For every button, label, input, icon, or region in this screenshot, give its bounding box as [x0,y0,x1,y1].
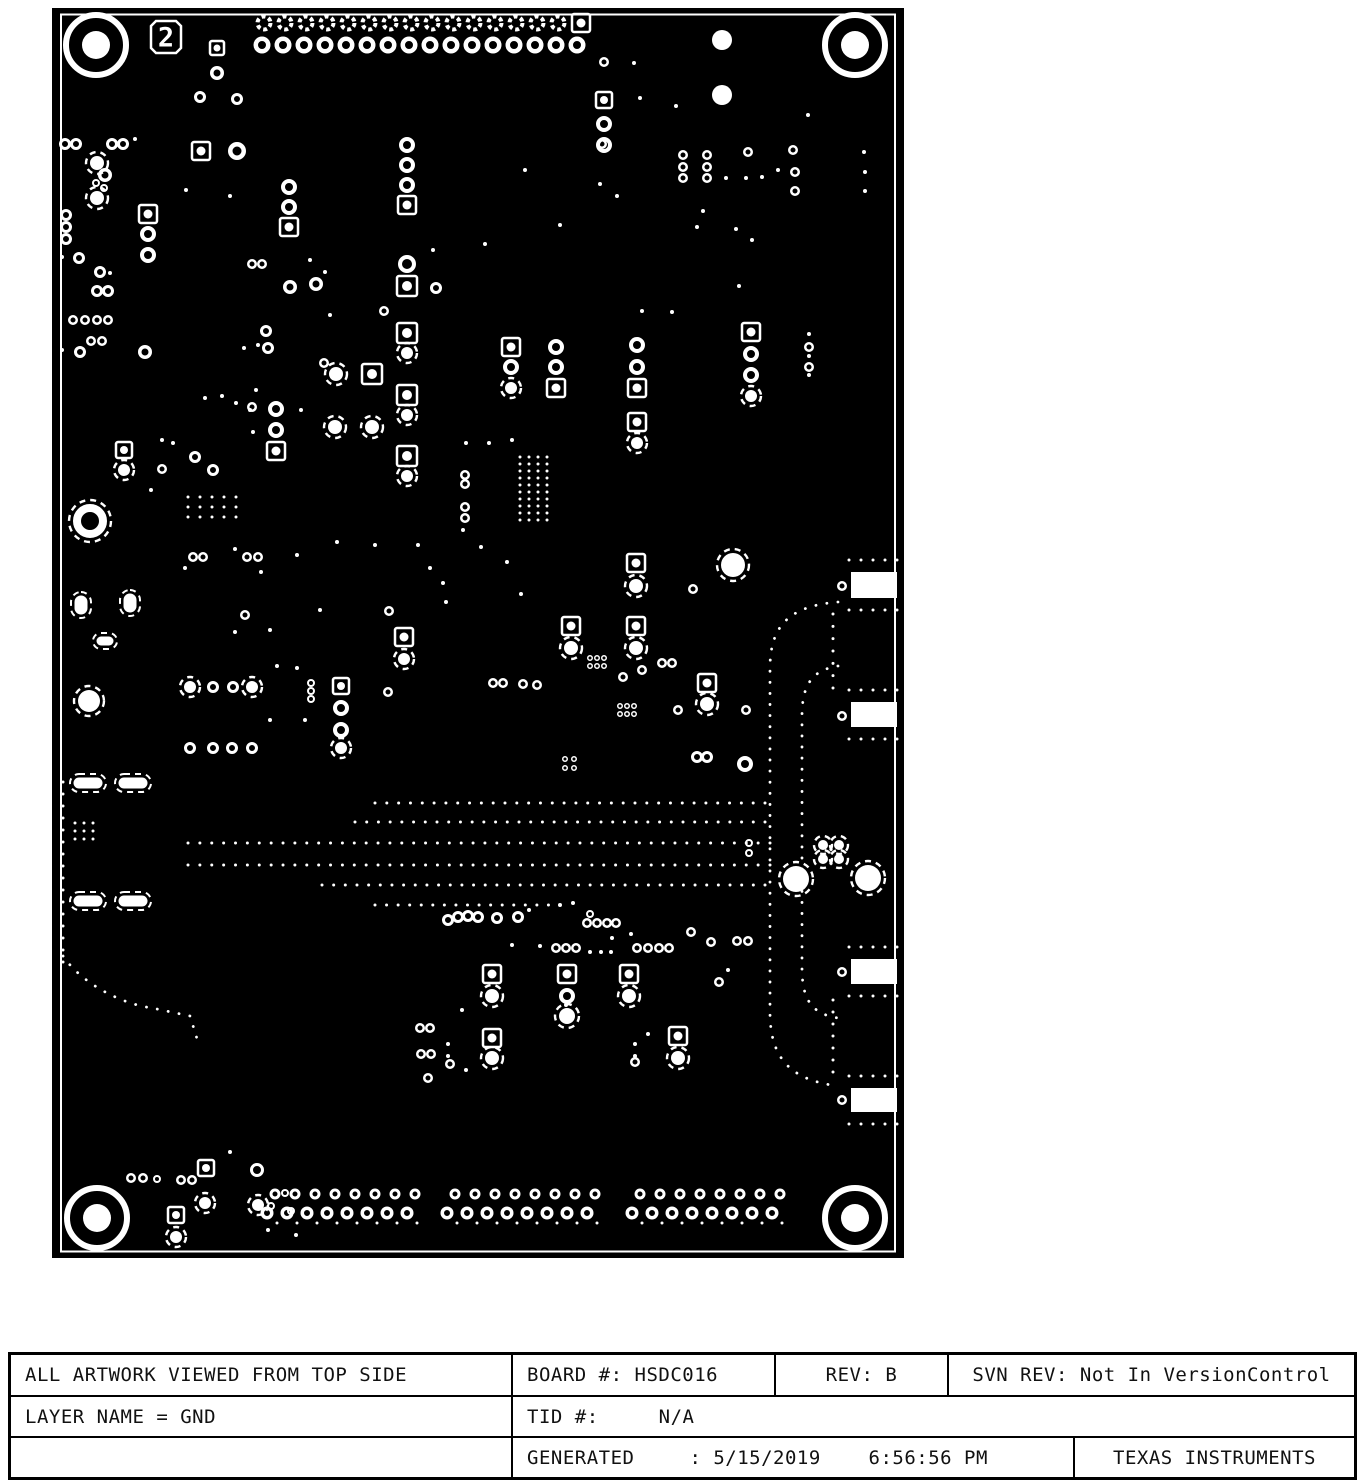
stitch-dot [832,1059,835,1062]
stitch-dot [436,842,439,845]
stitch-dot [757,864,760,867]
stitch-dot [681,1222,684,1225]
stitch-dot [74,830,77,833]
stitch-dot [537,477,540,480]
stitch-dot [400,842,403,845]
stitch-dot [484,884,487,887]
stitch-dot [412,821,415,824]
dot-pad [863,170,867,174]
stitch-dot [553,821,556,824]
stitch-dot [757,842,760,845]
stitch-dot [624,884,627,887]
dot-pad [328,313,332,317]
stitch-dot [223,516,226,519]
stitch-dot [669,802,672,805]
stitch-dot [329,842,332,845]
stitch-dot [717,884,720,887]
stitch-dot [622,802,625,805]
stitch-dot [555,842,558,845]
thermal-pad-center [745,390,757,402]
stitch-dot [769,842,772,845]
stitch-dot [860,559,863,562]
stitch-dot [519,463,522,466]
stitch-dot [412,864,415,867]
stitch-dot [377,864,380,867]
dot-pad [510,438,514,442]
stitch-dot [344,884,347,887]
stitch-dot [860,946,863,949]
dot-pad [538,944,542,948]
stitch-dot [235,496,238,499]
square-pad-hole [120,446,128,454]
stitch-dot [466,904,469,907]
stitch-dot [673,842,676,845]
stitch-dot [546,484,549,487]
edge-launch-pad [851,1088,897,1112]
stitch-dot [752,821,755,824]
stitch-dot [896,946,899,949]
stitch-dot [528,498,531,501]
oval-pad [75,596,88,615]
svn-rev-value: Not In VersionControl [1080,1364,1331,1386]
stitch-dot [519,498,522,501]
stitch-dot [472,884,475,887]
stitch-dot [374,904,377,907]
stitch-dot [884,1123,887,1126]
dot-pad [60,348,64,352]
dot-pad [523,168,527,172]
stitch-dot [293,864,296,867]
stitch-dot [705,821,708,824]
square-pad-hole [202,1164,210,1172]
stitch-dot [896,995,899,998]
stitch-dot [531,842,534,845]
dot-pad [807,373,811,377]
stitch-dot [436,864,439,867]
stitch-dot [527,802,530,805]
stitch-dot [564,821,567,824]
dot-pad [460,1008,464,1012]
stitch-dot [614,842,617,845]
stitch-dot [492,802,495,805]
thermal-pad-center [700,697,714,711]
stitch-dot [519,484,522,487]
stitch-dot [752,884,755,887]
stitch-dot [495,842,498,845]
stitch-dot [884,1075,887,1078]
stitch-dot [896,1123,899,1126]
dot-pad [737,284,741,288]
stitch-dot [614,864,617,867]
dot-pad [416,543,420,547]
stitch-dot [602,864,605,867]
pcb-gerber-artwork: 2 [0,0,1368,1300]
rev-label: REV: [826,1364,874,1386]
dot-pad [776,168,780,172]
stitch-dot [537,512,540,515]
dot-pad [308,258,312,262]
stitch-dot [896,738,899,741]
stitch-dot [547,904,550,907]
dot-pad [695,225,699,229]
square-pad-hole [567,622,576,631]
stitch-dot [62,853,65,856]
dot-pad [294,1233,298,1237]
stitch-dot [83,838,86,841]
stitch-dot [187,516,190,519]
stitch-dot [210,842,213,845]
square-pad-hole [337,682,345,690]
stitch-dot [519,519,522,522]
dot-pad [483,242,487,246]
stitch-dot [483,864,486,867]
stitch-dot [402,884,405,887]
thermal-pad-center [622,989,636,1003]
stitch-dot [321,884,324,887]
stitch-dot [896,689,899,692]
stitch-dot [385,904,388,907]
board-number-value: HSDC016 [635,1364,719,1386]
stitch-dot [647,884,650,887]
stitch-dot [389,821,392,824]
dot-pad [60,255,64,259]
stitch-dot [884,609,887,612]
stitch-dot [832,625,835,628]
stitch-dot [519,864,522,867]
stitch-dot [769,864,772,867]
thermal-pad-center [485,989,499,1003]
stitch-dot [341,842,344,845]
stitch-dot [504,802,507,805]
dot-pad [632,61,636,65]
stitch-dot [528,463,531,466]
stitch-dot [567,864,570,867]
stitch-dot [449,884,452,887]
thermal-pad-center [401,347,413,359]
stitch-dot [682,821,685,824]
oval-pad [74,896,103,907]
square-pad-hole [633,384,642,393]
stitch-dot [365,864,368,867]
stitch-dot [495,884,498,887]
dot-pad [268,628,272,632]
thermal-pad-center [818,854,828,864]
stitch-dot [716,802,719,805]
stitch-dot [424,842,427,845]
stitch-dot [62,865,65,868]
stitch-dot [524,904,527,907]
dot-pad [701,209,705,213]
edge-launch-pad [851,959,897,984]
stitch-dot [626,842,629,845]
svn-rev-label: SVN REV: [972,1364,1068,1386]
cell-rev: REV: B [774,1355,947,1395]
stitch-dot [733,864,736,867]
square-pad-hole [400,633,409,642]
stitch-dot [317,864,320,867]
stitch-dot [832,674,835,677]
stitch-dot [536,1222,539,1225]
stitch-dot [332,884,335,887]
thermal-pad-center [246,681,258,693]
dot-pad [807,332,811,336]
stitch-dot [376,1222,379,1225]
dot-pad [734,227,738,231]
stitch-dot [860,995,863,998]
stitch-dot [611,821,614,824]
square-pad-hole [600,96,608,104]
dot-pad [760,175,764,179]
square-pad-hole [507,343,516,352]
dot-pad [446,1042,450,1046]
stitch-dot [424,821,427,824]
dot-pad [303,718,307,722]
thermal-pad-center [90,191,104,205]
square-pad-hole [552,384,561,393]
stitch-dot [896,559,899,562]
mount-hole [841,31,869,59]
stitch-dot [92,838,95,841]
stitch-dot [62,949,65,952]
stitch-dot [884,995,887,998]
stitch-dot [546,456,549,459]
dot-pad [251,430,255,434]
dot-pad [464,1068,468,1072]
stitch-dot [546,477,549,480]
dot-pad [335,540,339,544]
stitch-dot [626,864,629,867]
stitch-dot [537,470,540,473]
stitch-dot [682,884,685,887]
stitch-dot [860,1075,863,1078]
square-pad-hole [625,970,634,979]
stitch-dot [721,1222,724,1225]
mount-hole [82,31,110,59]
stitch-dot [832,1047,835,1050]
board-number-label: BOARD #: [527,1364,623,1386]
cell-generated: GENERATED : 5/15/2019 6:56:56 PM [511,1438,1073,1477]
cell-tid: TID #: N/A [511,1397,1354,1436]
stitch-dot [365,821,368,824]
stitch-dot [507,884,510,887]
oval-pad [119,896,148,907]
dot-pad [724,176,728,180]
stitch-dot [355,884,358,887]
dot-pad [233,547,237,551]
stitch-dot [397,802,400,805]
stitch-dot [612,884,615,887]
thermal-pad-center [631,437,643,449]
stitch-dot [555,864,558,867]
stitch-dot [501,904,504,907]
square-pad-hole [402,281,412,291]
thermal-pad-center [559,1008,575,1024]
cell-artwork-note: ALL ARTWORK VIEWED FROM TOP SIDE [11,1355,511,1395]
thermal-pad-center [855,865,881,891]
stitch-dot [638,842,641,845]
stitch-dot [717,821,720,824]
dot-pad [461,528,465,532]
dot-pad [640,309,644,313]
square-pad-hole [144,210,153,219]
stitch-dot [728,821,731,824]
stitch-dot [685,842,688,845]
title-block-row-3: GENERATED : 5/15/2019 6:56:56 PM TEXAS I… [11,1436,1354,1477]
dot-pad [712,85,732,105]
oval-pad [124,594,137,613]
stitch-dot [781,1222,784,1225]
stitch-dot [704,802,707,805]
stitch-dot [551,802,554,805]
thermal-pad-center [485,1051,499,1065]
stitch-dot [896,609,899,612]
dot-pad [588,950,592,954]
stitch-dot [456,1222,459,1225]
stitch-dot [460,884,463,887]
stitch-dot [74,822,77,825]
stitch-dot [472,842,475,845]
stitch-dot [537,505,540,508]
stitch-dot [519,512,522,515]
stitch-dot [872,689,875,692]
mount-hole [83,1204,111,1232]
stitch-dot [590,864,593,867]
dot-pad [184,188,188,192]
stitch-dot [764,821,767,824]
dot-pad [862,150,866,154]
stitch-dot [650,842,653,845]
stitch-dot [589,884,592,887]
stitch-dot [576,1222,579,1225]
stitch-dot [506,821,509,824]
cell-company: TEXAS INSTRUMENTS [1073,1438,1354,1477]
stitch-dot [494,821,497,824]
stitch-dot [705,884,708,887]
stitch-dot [414,884,417,887]
thermal-pad-center [505,382,517,394]
stitch-dot [198,864,201,867]
stitch-dot [408,904,411,907]
stitch-dot [535,904,538,907]
stitch-dot [416,1222,419,1225]
stitch-dot [641,1222,644,1225]
dot-pad [228,1150,232,1154]
stitch-dot [316,1222,319,1225]
stitch-dot [848,738,851,741]
stitch-dot [448,842,451,845]
layer-number-text: 2 [158,23,174,54]
stitch-dot [528,477,531,480]
dot-pad [220,394,224,398]
stitch-dot [681,802,684,805]
stitch-dot [519,505,522,508]
square-pad-hole [703,679,712,688]
dot-pad [266,1228,270,1232]
stitch-dot [537,463,540,466]
stitch-dot [515,802,518,805]
stitch-dot [483,842,486,845]
stitch-dot [74,838,77,841]
stitch-dot [235,516,238,519]
stitch-dot [623,821,626,824]
dot-pad [108,271,112,275]
dot-pad [615,194,619,198]
dot-pad [571,901,575,905]
stitch-dot [400,864,403,867]
dot-pad [203,396,207,400]
stitch-dot [460,842,463,845]
stitch-dot [740,821,743,824]
square-pad-hole [402,390,412,400]
stitch-dot [431,904,434,907]
stitch-dot [385,802,388,805]
stitch-dot [282,842,285,845]
stitch-dot [397,904,400,907]
stitch-dot [388,864,391,867]
stitch-dot [476,1222,479,1225]
stitch-dot [62,877,65,880]
stitch-dot [62,961,65,964]
stitch-dot [598,802,601,805]
square-pad-hole [197,147,206,156]
stitch-dot [832,1011,835,1014]
stitch-dot [528,519,531,522]
dot-pad [487,441,491,445]
stitch-dot [600,821,603,824]
thermal-pad-center [335,742,347,754]
square-pad-hole [488,1034,497,1043]
dot-pad [479,545,483,549]
stitch-dot [662,842,665,845]
stitch-dot [448,864,451,867]
square-pad-hole [403,201,412,210]
stitch-dot [519,470,522,473]
stitch-dot [516,1222,519,1225]
stitch-dot [576,821,579,824]
stitch-dot [600,884,603,887]
stitch-dot [528,484,531,487]
cell-board-number: BOARD #: HSDC016 [511,1355,774,1395]
dot-pad [256,343,260,347]
stitch-dot [460,864,463,867]
dot-pad [564,1003,568,1007]
stitch-dot [270,842,273,845]
stitch-dot [353,864,356,867]
stitch-dot [701,1222,704,1225]
stitch-dot [367,884,370,887]
dot-pad [248,408,252,412]
stitch-dot [199,496,202,499]
stitch-dot [223,496,226,499]
thermal-pad-center [564,641,578,655]
stitch-dot [832,662,835,665]
square-pad-hole [674,1032,683,1041]
stitch-dot [554,884,557,887]
stitch-dot [537,519,540,522]
dot-pad [599,950,603,954]
stitch-dot [531,864,534,867]
stitch-dot [528,491,531,494]
dot-pad [519,592,523,596]
square-pad-hole [747,328,756,337]
stitch-dot [602,842,605,845]
dot-pad [318,608,322,612]
stitch-dot [270,864,273,867]
stitch-dot [199,516,202,519]
stitch-dot [412,842,415,845]
stitch-dot [556,1222,559,1225]
dot-pad [295,666,299,670]
